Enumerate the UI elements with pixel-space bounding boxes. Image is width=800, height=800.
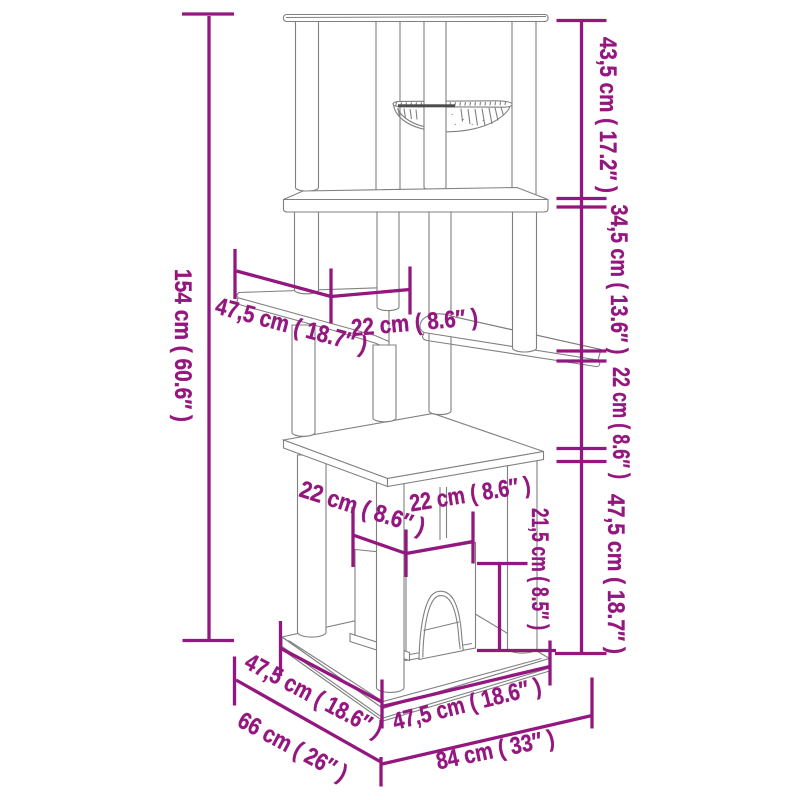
svg-text:47,5 cm ( 18.7″ ): 47,5 cm ( 18.7″ ) — [602, 494, 629, 654]
svg-text:21,5 cm ( 8.5″ ): 21,5 cm ( 8.5″ ) — [526, 508, 553, 630]
svg-text:43,5 cm ( 17.2″ ): 43,5 cm ( 17.2″ ) — [594, 37, 621, 193]
svg-text:34,5 cm ( 13.6″ ): 34,5 cm ( 13.6″ ) — [605, 205, 632, 355]
svg-text:22 cm ( 8.6″ ): 22 cm ( 8.6″ ) — [607, 367, 634, 479]
svg-text:154 cm ( 60.6″ ): 154 cm ( 60.6″ ) — [169, 269, 196, 422]
